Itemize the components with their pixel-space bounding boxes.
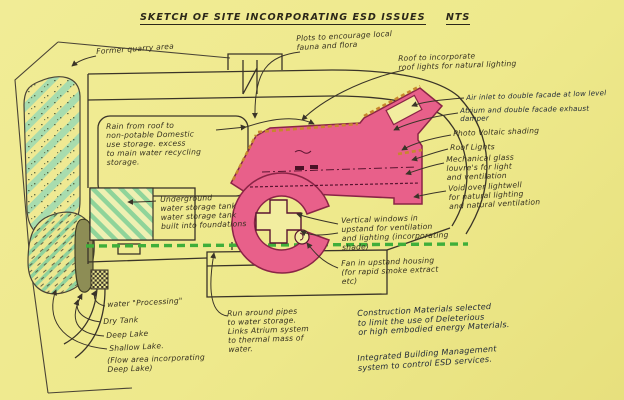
sketch-title: SKETCH OF SITE INCORPORATING ESD ISSUES … <box>140 12 470 25</box>
label-mech-louvres: Mechanical glass louvre's for light and … <box>446 154 515 183</box>
label-tank-note: Underground water storage tank water sto… <box>160 193 247 232</box>
site-sketch-page: SKETCH OF SITE INCORPORATING ESD ISSUES … <box>0 0 624 400</box>
upstand-cross <box>256 200 301 243</box>
scale-label: NTS <box>446 12 470 25</box>
label-roof-lights: Roof Lights <box>450 143 495 153</box>
label-vertical-windows: Vertical windows in upstand for ventilat… <box>341 213 449 253</box>
label-flow-area: (Flow area incorporating Deep Lake) <box>107 354 205 375</box>
label-atrium-exhaust: Atrium and double facade exhaust damper <box>460 105 589 124</box>
title-text: SKETCH OF SITE INCORPORATING ESD ISSUES <box>140 12 426 25</box>
water-storage-tank <box>90 188 153 240</box>
label-fan-upstand: Fan in upstand housing (for rapid smoke … <box>341 257 439 287</box>
label-dry-tank: Dry Tank <box>103 316 139 327</box>
label-void-lightwell: Void over lightwell for natural lighting… <box>448 180 541 212</box>
water-processing-unit <box>91 270 108 289</box>
fan-symbol <box>295 230 309 244</box>
label-rain-note: Rain from roof to non-potable Domestic u… <box>106 121 201 167</box>
label-run-around: Run around pipes to water storage. Links… <box>227 307 310 355</box>
